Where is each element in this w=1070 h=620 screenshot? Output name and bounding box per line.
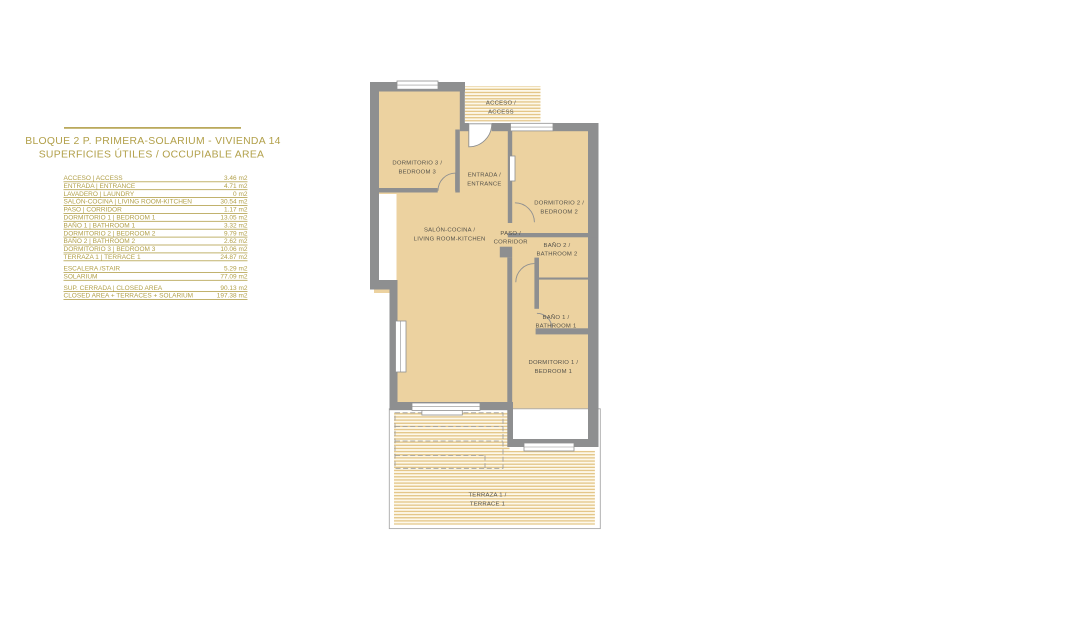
- svg-text:BAÑO 2 | BATHROOM 2: BAÑO 2 | BATHROOM 2: [64, 236, 136, 245]
- svg-text:PASO | CORRIDOR: PASO | CORRIDOR: [64, 207, 123, 214]
- svg-text:SALÓN-COCINA | LIVING ROOM-KIT: SALÓN-COCINA | LIVING ROOM-KITCHEN: [64, 197, 193, 206]
- svg-text:4.71 m2: 4.71 m2: [224, 183, 248, 190]
- svg-text:0 m2: 0 m2: [233, 191, 248, 198]
- svg-text:77.09 m2: 77.09 m2: [220, 274, 247, 281]
- svg-text:13.05 m2: 13.05 m2: [220, 215, 247, 222]
- svg-text:DORMITORIO 2 /: DORMITORIO 2 /: [534, 201, 584, 207]
- svg-text:CLOSED AREA + TERRACES + SOLAR: CLOSED AREA + TERRACES + SOLARIUM: [64, 293, 194, 300]
- svg-text:TERRAZA 1 /: TERRAZA 1 /: [468, 493, 506, 499]
- svg-text:5.29 m2: 5.29 m2: [224, 266, 248, 273]
- svg-text:ENTRADA /: ENTRADA /: [468, 173, 501, 179]
- svg-text:SUPERFICIES ÚTILES / OCCUPIABL: SUPERFICIES ÚTILES / OCCUPIABLE AREA: [39, 147, 265, 160]
- svg-text:197.38 m2: 197.38 m2: [217, 293, 248, 300]
- svg-text:BAÑO 1 /: BAÑO 1 /: [543, 314, 570, 321]
- svg-text:ENTRADA | ENTRANCE: ENTRADA | ENTRANCE: [64, 183, 136, 190]
- svg-text:DORMITORIO 2 | BEDROOM 2: DORMITORIO 2 | BEDROOM 2: [64, 230, 156, 237]
- svg-text:90.13 m2: 90.13 m2: [220, 285, 247, 292]
- svg-text:2.62 m2: 2.62 m2: [224, 238, 248, 245]
- svg-text:TERRAZA 1 | TERRACE 1: TERRAZA 1 | TERRACE 1: [64, 254, 141, 261]
- svg-text:ACCESS: ACCESS: [488, 110, 514, 116]
- svg-text:ESCALERA /STAIR: ESCALERA /STAIR: [64, 266, 121, 273]
- svg-text:BLOQUE 2 P. PRIMERA-SOLARIUM -: BLOQUE 2 P. PRIMERA-SOLARIUM - VIVIENDA …: [25, 136, 281, 147]
- svg-text:DORMITORIO 3 | BEDROOM 3: DORMITORIO 3 | BEDROOM 3: [64, 246, 156, 253]
- svg-text:10.06 m2: 10.06 m2: [220, 246, 247, 253]
- svg-text:BEDROOM 3: BEDROOM 3: [398, 170, 436, 176]
- svg-text:DORMITORIO 1 /: DORMITORIO 1 /: [528, 360, 578, 366]
- svg-text:24.87 m2: 24.87 m2: [220, 254, 247, 261]
- svg-text:DORMITORIO 1 | BEDROOM 1: DORMITORIO 1 | BEDROOM 1: [64, 215, 156, 222]
- svg-text:BEDROOM 2: BEDROOM 2: [540, 210, 578, 216]
- svg-text:LIVING ROOM-KITCHEN: LIVING ROOM-KITCHEN: [414, 237, 486, 243]
- svg-text:BAÑO 1 | BATHROOM 1: BAÑO 1 | BATHROOM 1: [64, 220, 136, 229]
- svg-text:30.54 m2: 30.54 m2: [220, 199, 247, 206]
- svg-text:BATHROOM 1: BATHROOM 1: [535, 323, 576, 329]
- svg-text:9.79 m2: 9.79 m2: [224, 230, 248, 237]
- svg-text:ENTRANCE: ENTRANCE: [467, 182, 501, 188]
- svg-text:SUP. CERRADA | CLOSED AREA: SUP. CERRADA | CLOSED AREA: [64, 285, 163, 292]
- svg-text:LAVADERO | LAUNDRY: LAVADERO | LAUNDRY: [64, 191, 135, 198]
- svg-text:SOLARIUM: SOLARIUM: [64, 274, 98, 281]
- svg-text:PASO /: PASO /: [500, 231, 521, 237]
- svg-text:BAÑO 2 /: BAÑO 2 /: [544, 242, 571, 249]
- svg-text:CORRIDOR: CORRIDOR: [494, 240, 528, 246]
- svg-text:BATHROOM 2: BATHROOM 2: [536, 252, 577, 258]
- svg-text:3.32 m2: 3.32 m2: [224, 222, 248, 229]
- svg-text:ACCESO /: ACCESO /: [486, 101, 516, 107]
- svg-text:TERRACE 1: TERRACE 1: [470, 502, 505, 508]
- svg-text:BEDROOM 1: BEDROOM 1: [535, 369, 573, 375]
- svg-text:1.17 m2: 1.17 m2: [224, 207, 248, 214]
- svg-text:3.46 m2: 3.46 m2: [224, 175, 248, 182]
- svg-text:SALÓN-COCINA /: SALÓN-COCINA /: [424, 227, 475, 234]
- svg-text:DORMITORIO 3 /: DORMITORIO 3 /: [392, 161, 442, 167]
- svg-text:ACCESO | ACCESS: ACCESO | ACCESS: [64, 175, 124, 182]
